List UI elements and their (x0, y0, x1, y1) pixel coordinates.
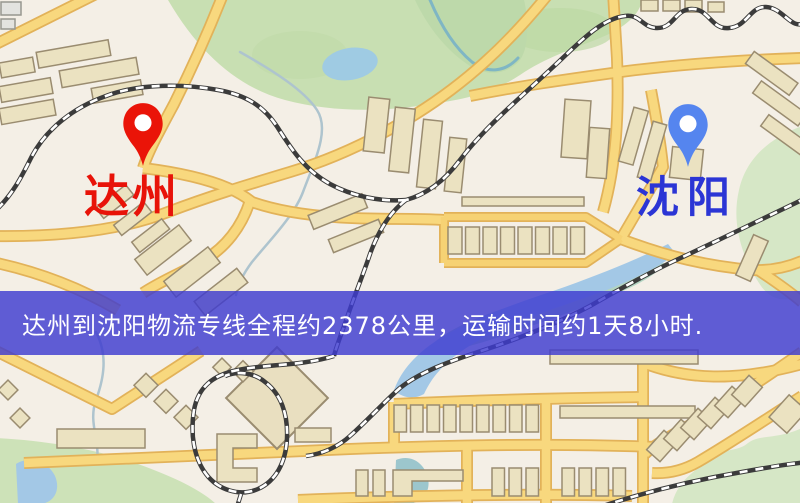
origin-pin-hole (134, 114, 151, 131)
destination-pin-icon[interactable] (665, 103, 711, 169)
route-info-banner: 达州到沈阳物流专线全程约2378公里，运输时间约1天8小时. (0, 291, 800, 355)
origin-pin-icon[interactable] (120, 102, 166, 168)
destination-pin-hole (679, 115, 696, 132)
destination-pin-shape (668, 104, 707, 167)
origin-pin-shape (123, 103, 162, 166)
origin-city-label: 达州 (84, 174, 180, 219)
map-screenshot: 达州 沈阳 达州到沈阳物流专线全程约2378公里，运输时间约1天8小时. (0, 0, 800, 503)
map-canvas[interactable] (0, 0, 800, 503)
destination-city-label: 沈阳 (636, 177, 738, 220)
route-info-text: 达州到沈阳物流专线全程约2378公里，运输时间约1天8小时. (22, 306, 703, 341)
